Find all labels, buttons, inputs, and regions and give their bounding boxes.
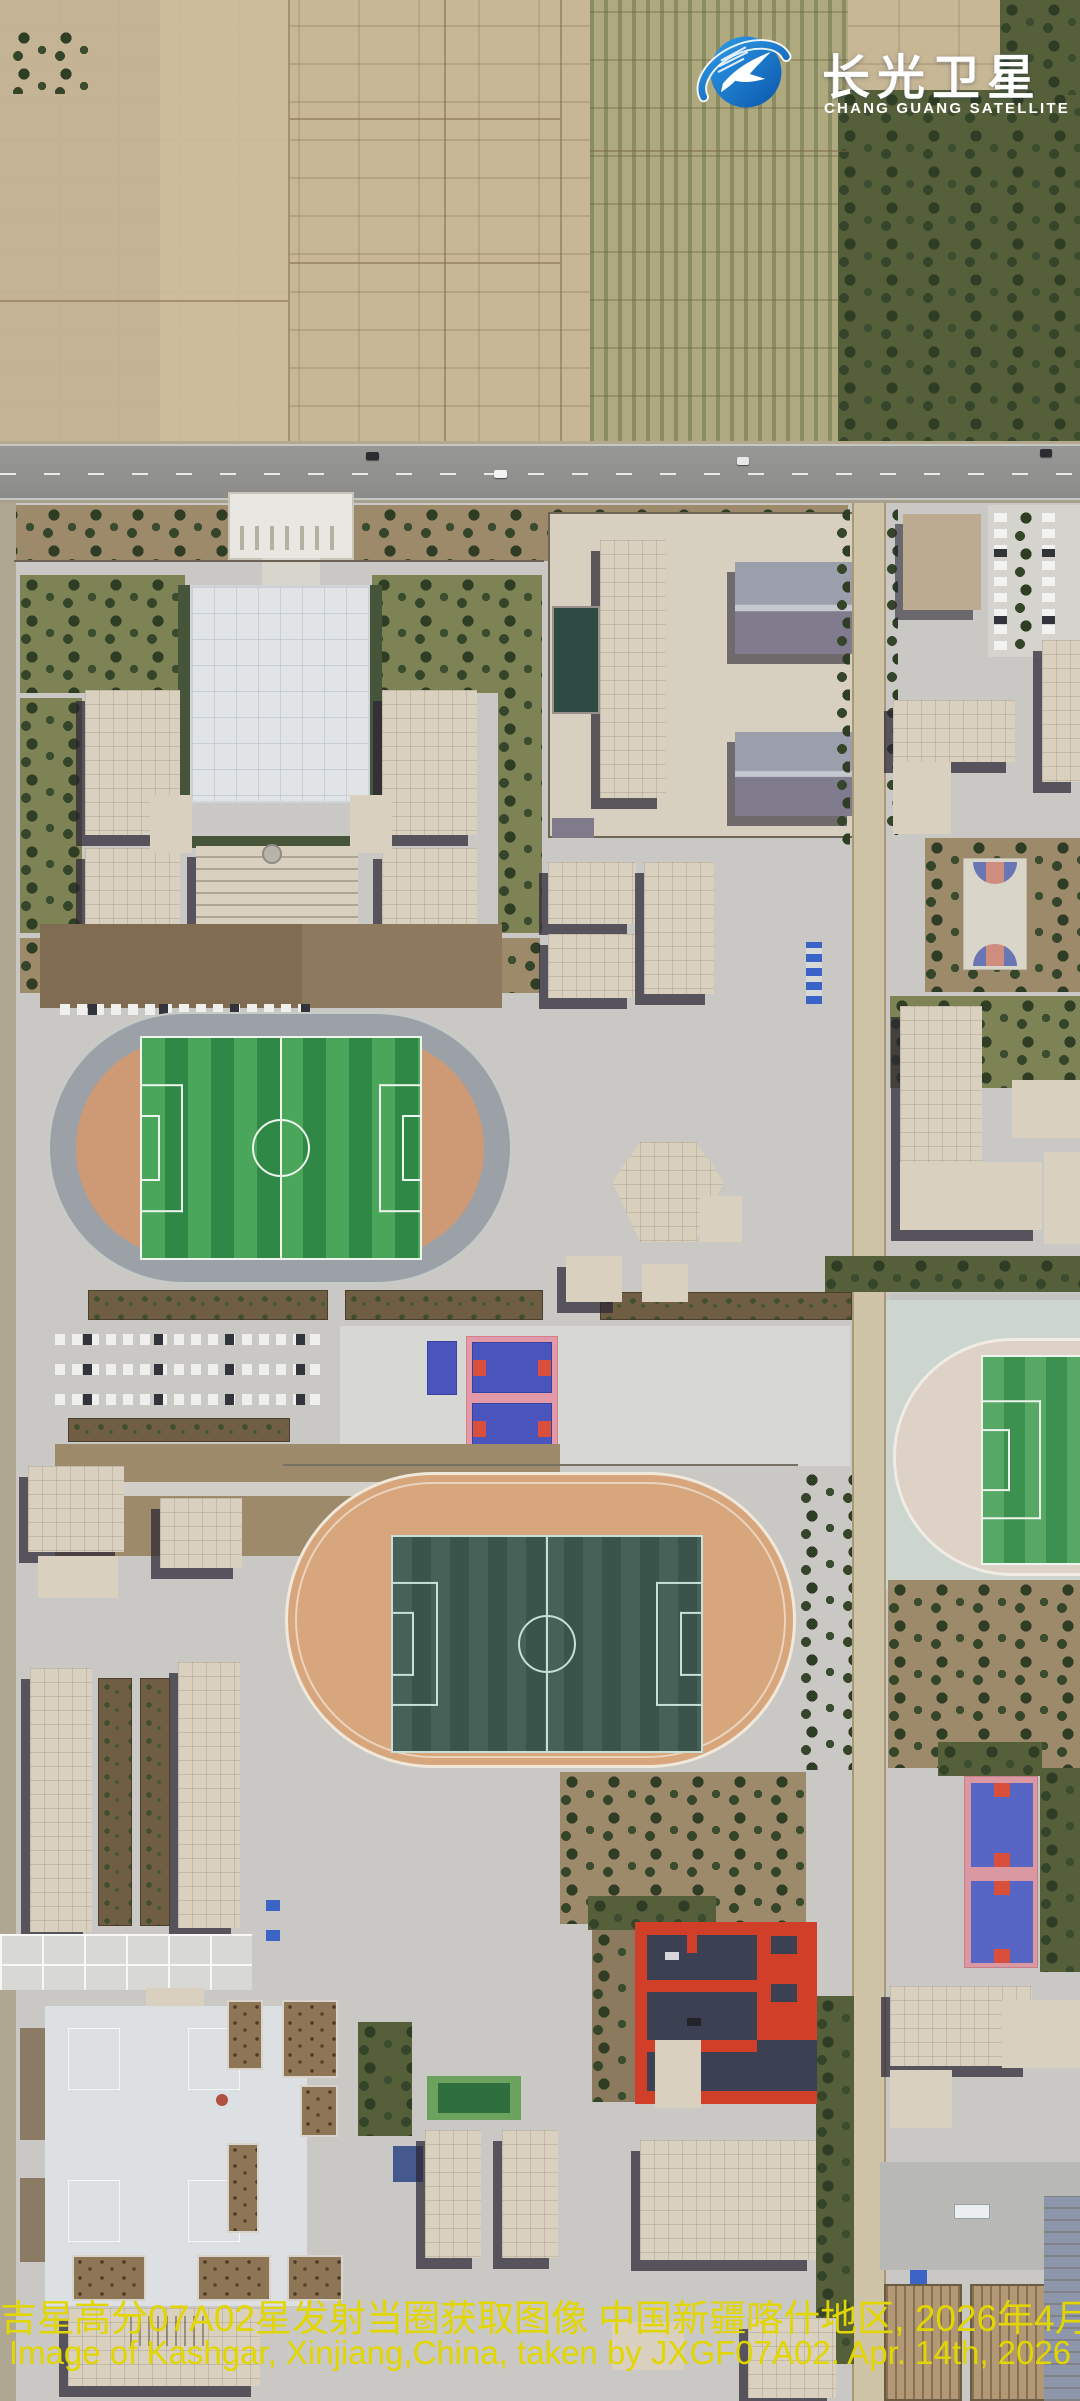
pitch-goal-box (982, 1429, 1010, 1491)
tree-row (825, 1256, 1080, 1292)
field-boundary (290, 262, 560, 264)
building (300, 2085, 338, 2137)
campus-west-lane (0, 503, 16, 2401)
tree-grove (838, 90, 1080, 443)
parked-cars (1042, 512, 1055, 650)
court-key (994, 1783, 1010, 1797)
tree-planter (68, 1418, 290, 1442)
parked-cars (55, 1334, 327, 1345)
building (28, 1466, 124, 1552)
building (20, 2028, 48, 2140)
building (1044, 1152, 1080, 1244)
field-boundary (444, 0, 446, 443)
red-corridor (757, 2091, 817, 2104)
court-key (473, 1421, 486, 1437)
running-track-center (285, 1472, 796, 1768)
football-pitch (391, 1535, 703, 1753)
landscaped-lawn (20, 575, 185, 693)
basketball-court (971, 1783, 1033, 1867)
running-track-west (48, 1012, 512, 1284)
building-wing (150, 795, 192, 853)
building (644, 862, 714, 994)
basketball-halfcourt (963, 858, 1027, 970)
tree-planter (600, 1292, 852, 1320)
building (903, 514, 981, 610)
car (687, 2018, 701, 2026)
field-boundary (560, 0, 562, 443)
pitch-center-circle (518, 1615, 576, 1673)
changguang-logo: 长光卫星 CHANG GUANG SATELLITE (640, 14, 1080, 132)
football-pitch (140, 1036, 422, 1260)
building (38, 1556, 118, 1598)
roof-notch (771, 1936, 797, 1954)
field-boundary (0, 300, 288, 302)
building (20, 2178, 48, 2262)
swallow-orbit-icon (696, 26, 792, 122)
car (737, 457, 749, 465)
tree-grove (358, 2022, 412, 2136)
scrub-with-trees (888, 1580, 1080, 1768)
building (900, 1162, 1042, 1230)
tree-line (836, 505, 850, 845)
car (366, 452, 379, 460)
bike-racks (806, 942, 822, 1004)
tree-line (1014, 508, 1038, 654)
tree-strip (592, 1930, 640, 2102)
small-building (552, 818, 594, 838)
court-key (994, 1881, 1010, 1895)
building (893, 700, 1015, 762)
court-key (994, 1853, 1010, 1867)
roof-notch (771, 1984, 797, 2002)
satellite-image: 长光卫星 CHANG GUANG SATELLITE 吉星高分07A02星发射当… (0, 0, 1080, 2401)
parked-cars (55, 1394, 327, 1405)
building (85, 848, 180, 930)
hedge (370, 585, 382, 803)
red-corridor (635, 1922, 647, 2104)
field-patch (160, 0, 290, 443)
building (382, 690, 477, 835)
court-key (538, 1421, 551, 1437)
highway-road (0, 441, 1080, 503)
building (640, 2140, 816, 2260)
building (900, 1006, 982, 1162)
car (665, 1952, 679, 1960)
building (227, 2000, 263, 2070)
basketball-courts-east (964, 1776, 1038, 1968)
stadium-fence (283, 1464, 798, 1466)
tree-planter (88, 1290, 328, 1320)
building-wing (350, 795, 392, 853)
paved-courtyard (190, 585, 370, 803)
building (548, 862, 636, 924)
court-outline (68, 2028, 120, 2090)
basketball-court (971, 1881, 1033, 1963)
building (1012, 1080, 1080, 1138)
building (655, 2040, 701, 2108)
plaza-red-dot (216, 2094, 228, 2106)
basketball-courts-center (466, 1336, 558, 1460)
court-key-top (973, 862, 1017, 884)
landscaped-lawn (498, 575, 542, 933)
car (494, 470, 507, 478)
tree-strip (800, 1470, 852, 1770)
parked-cars (994, 512, 1007, 650)
blue-roof-building (393, 2146, 423, 2182)
green-court (438, 2083, 510, 2113)
gate-columns (240, 526, 342, 550)
dormitory-building (30, 1668, 92, 1932)
tree-grove (938, 1742, 1042, 1776)
court-outline (68, 2180, 120, 2242)
pitch-goal-box (402, 1115, 421, 1181)
basketball-court-small (427, 1341, 457, 1395)
blue-bin (266, 1900, 280, 1911)
building (227, 2143, 259, 2233)
court-key-bottom (973, 944, 1017, 966)
lane-markings (0, 473, 1080, 475)
field-boundary (590, 150, 848, 152)
parked-cars (55, 1364, 327, 1375)
car (1040, 449, 1052, 457)
dormitory-building (178, 1662, 240, 1928)
building (1042, 640, 1080, 782)
landscaped-lawn (20, 698, 82, 933)
court-key (994, 1949, 1010, 1963)
pitch-center-circle (252, 1119, 310, 1177)
red-corridor (635, 1980, 757, 1992)
pitch-goal-box (141, 1115, 160, 1181)
tree-planter (345, 1290, 543, 1320)
swimming-pool (552, 606, 600, 714)
walkway-grid (0, 1934, 252, 1990)
building (548, 934, 636, 998)
campus-entrance-gate (228, 492, 354, 560)
building (382, 848, 477, 930)
boundary-wall (14, 560, 544, 562)
blue-bin (266, 1930, 280, 1941)
blue-container (910, 2270, 927, 2284)
tree-clump (12, 28, 92, 94)
football-pitch (981, 1355, 1080, 1565)
building (890, 2070, 952, 2128)
building-wing (700, 1196, 742, 1242)
logo-subtitle: CHANG GUANG SATELLITE (824, 100, 1070, 117)
dirt-ground (40, 924, 302, 1008)
basketball-court (472, 1342, 552, 1393)
pitch-goal-box (392, 1612, 414, 1676)
court-key (538, 1360, 551, 1376)
pitch-goal-box (680, 1612, 702, 1676)
tree-planter (98, 1678, 132, 1926)
red-corridor (635, 1922, 757, 1935)
building (160, 1498, 242, 1568)
red-stub (687, 1935, 697, 1953)
building (282, 2000, 338, 2078)
caption-line-english: Image of Kashgar, Xinjiang,China, taken … (0, 2334, 1080, 2372)
fountain (262, 844, 282, 864)
building (502, 2130, 558, 2258)
campus-road (852, 503, 886, 2401)
building (600, 540, 666, 798)
truck (954, 2204, 990, 2219)
tree-planter (140, 1678, 170, 1926)
field-boundary (288, 0, 290, 443)
building (566, 1256, 622, 1302)
court-key (473, 1360, 486, 1376)
building-wing (893, 762, 951, 834)
field-boundary (290, 118, 560, 120)
building (425, 2130, 481, 2258)
logo-title: 长光卫星 (822, 38, 1042, 108)
tree-grove (1040, 1768, 1080, 1972)
building (642, 1264, 688, 1302)
building (1002, 2000, 1080, 2068)
